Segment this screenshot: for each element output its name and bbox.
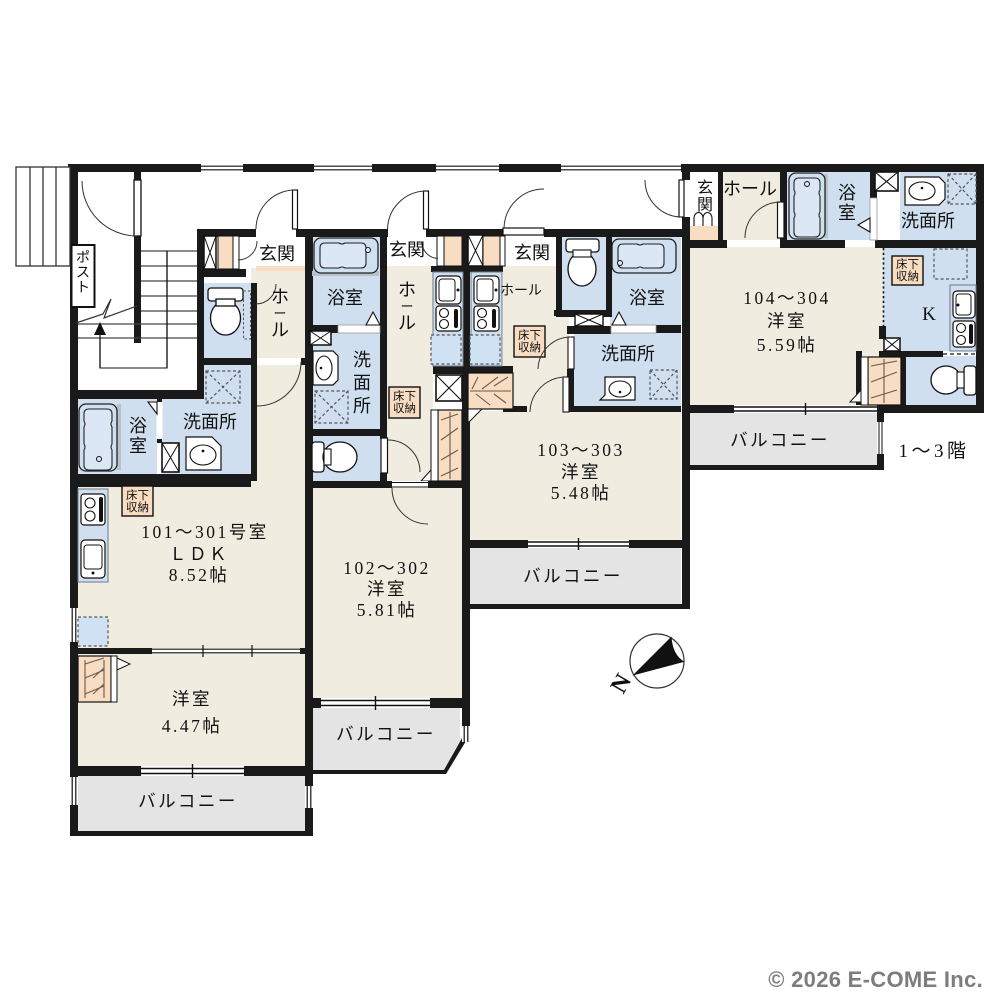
svg-text:洗: 洗 [353,350,371,370]
svg-text:室: 室 [129,436,147,456]
svg-text:ル: ル [271,320,289,340]
svg-text:室: 室 [838,203,856,223]
svg-text:洗面所: 洗面所 [183,412,237,432]
svg-text:収納: 収納 [518,341,541,354]
svg-text:ー: ー [273,306,286,321]
svg-text:103〜303: 103〜303 [537,440,625,460]
svg-text:バルコニー: バルコニー [730,430,830,450]
svg-text:4.47帖: 4.47帖 [162,716,223,736]
svg-text:洋室: 洋室 [172,689,212,709]
svg-text:ホ: ホ [271,287,289,307]
svg-text:浴: 浴 [129,416,147,436]
svg-text:8.52帖: 8.52帖 [169,565,230,585]
svg-text:洋室: 洋室 [561,462,601,482]
svg-text:101〜301号室: 101〜301号室 [141,522,269,542]
svg-text:収納: 収納 [896,270,919,283]
svg-text:浴室: 浴室 [629,288,665,308]
svg-text:ス: ス [76,266,90,281]
svg-text:ー: ー [400,299,413,314]
svg-text:バルコニー: バルコニー [336,724,436,744]
svg-text:玄: 玄 [697,179,713,197]
svg-text:バルコニー: バルコニー [523,566,623,586]
svg-text:ル: ル [398,313,416,333]
svg-text:洋室: 洋室 [367,579,407,599]
svg-text:5.59帖: 5.59帖 [757,335,818,355]
svg-text:ポ: ポ [76,250,90,266]
svg-text:所: 所 [353,396,371,416]
svg-text:玄関: 玄関 [389,240,425,260]
svg-text:玄関: 玄関 [514,243,550,263]
svg-text:床下: 床下 [126,488,149,502]
svg-text:洗面所: 洗面所 [601,344,655,364]
svg-text:バルコニー: バルコニー [138,791,238,811]
svg-text:面: 面 [353,373,371,393]
svg-text:© 2026 E-COME Inc.: © 2026 E-COME Inc. [768,967,983,992]
svg-text:ホ: ホ [398,280,416,300]
svg-text:浴: 浴 [838,183,856,203]
svg-text:102〜302: 102〜302 [343,558,431,578]
svg-text:床下: 床下 [518,328,541,342]
svg-text:床下: 床下 [896,257,919,271]
svg-text:洋室: 洋室 [767,311,807,331]
svg-text:K: K [922,304,936,325]
svg-text:関: 関 [697,197,713,214]
svg-text:床下: 床下 [393,389,416,403]
svg-text:収納: 収納 [126,501,149,514]
svg-text:5.81帖: 5.81帖 [357,600,418,620]
svg-text:ＬＤＫ: ＬＤＫ [169,544,229,564]
svg-text:収納: 収納 [393,402,416,415]
svg-text:ホール: ホール [500,284,542,299]
svg-text:1〜3階: 1〜3階 [898,440,969,462]
svg-text:ト: ト [76,281,90,296]
svg-text:5.48帖: 5.48帖 [551,483,612,503]
svg-text:ホール: ホール [723,179,777,199]
svg-text:玄関: 玄関 [259,244,295,264]
svg-text:104〜304: 104〜304 [743,288,831,308]
svg-text:浴室: 浴室 [327,288,363,308]
svg-text:洗面所: 洗面所 [901,211,955,231]
